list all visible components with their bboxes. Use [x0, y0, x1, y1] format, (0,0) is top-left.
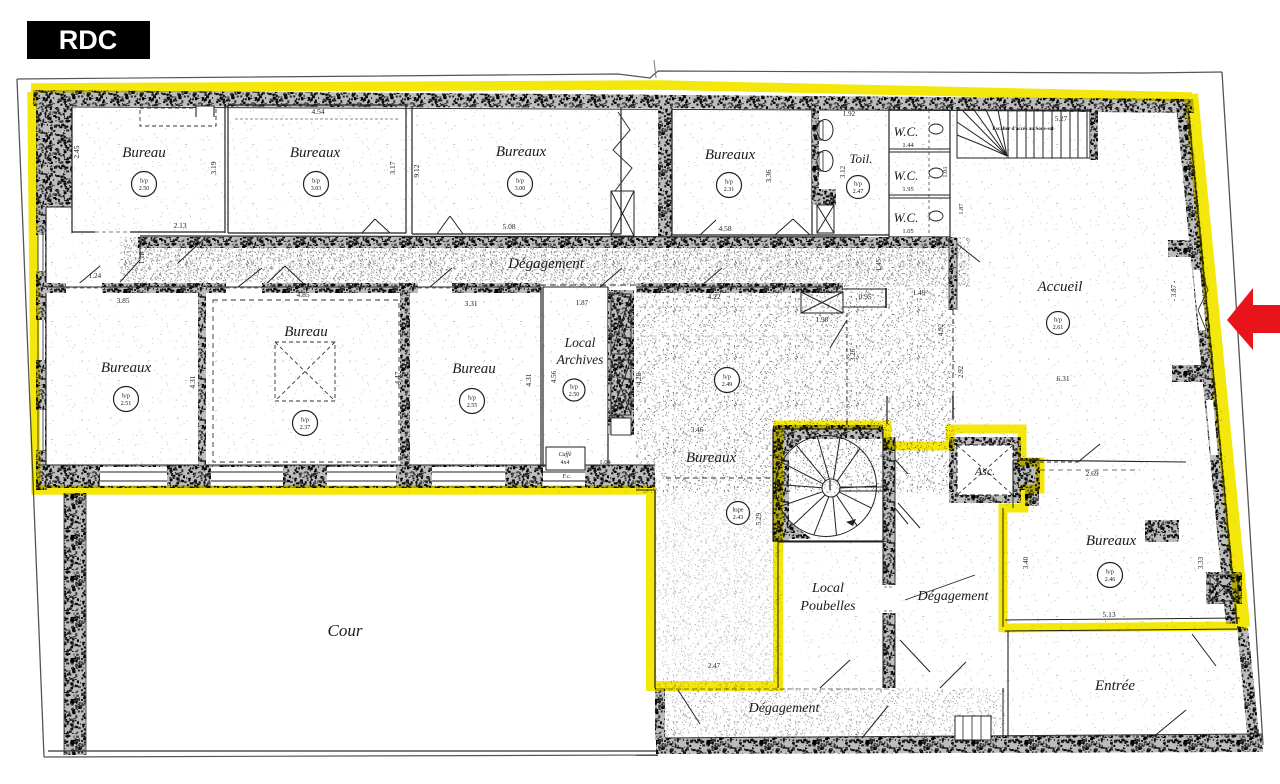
- svg-text:hspe: hspe: [733, 508, 744, 514]
- svg-text:h/p: h/p: [516, 179, 524, 185]
- svg-text:Poubelles: Poubelles: [799, 599, 856, 614]
- svg-text:h/p: h/p: [122, 394, 130, 400]
- svg-text:Local: Local: [564, 335, 596, 350]
- svg-text:3.19: 3.19: [209, 161, 218, 174]
- svg-text:5.08: 5.08: [502, 222, 515, 231]
- svg-text:Dégagement: Dégagement: [507, 256, 585, 272]
- svg-text:Bureaux: Bureaux: [101, 360, 152, 376]
- svg-text:3.26: 3.26: [849, 348, 857, 361]
- svg-text:Bureau: Bureau: [122, 145, 166, 161]
- svg-text:2.37: 2.37: [300, 425, 311, 431]
- svg-text:4.92: 4.92: [937, 323, 945, 336]
- svg-text:2.49: 2.49: [722, 382, 733, 388]
- svg-text:9.12: 9.12: [412, 164, 421, 177]
- svg-text:0.95: 0.95: [858, 292, 871, 301]
- svg-text:Bureaux: Bureaux: [686, 450, 737, 466]
- svg-text:3.85: 3.85: [116, 296, 129, 305]
- svg-text:h/p: h/p: [468, 396, 476, 402]
- svg-text:Accueil: Accueil: [1037, 279, 1083, 295]
- svg-text:h/p: h/p: [723, 375, 731, 381]
- svg-text:1.49: 1.49: [912, 288, 925, 297]
- svg-text:20.16: 20.16: [535, 241, 552, 250]
- svg-text:1.45: 1.45: [875, 258, 883, 271]
- svg-text:3.40: 3.40: [1022, 556, 1030, 569]
- svg-text:5.13: 5.13: [1102, 610, 1115, 619]
- svg-text:2.61: 2.61: [1053, 325, 1064, 331]
- svg-text:h/p: h/p: [570, 385, 578, 391]
- svg-text:Local: Local: [811, 581, 844, 596]
- svg-text:Escalier d'accès au Sous-sol: Escalier d'accès au Sous-sol: [992, 126, 1054, 132]
- svg-text:6.31: 6.31: [1056, 374, 1069, 383]
- svg-text:Bureau: Bureau: [452, 361, 496, 377]
- svg-text:h/p: h/p: [301, 418, 309, 424]
- svg-text:Bureaux: Bureaux: [496, 144, 547, 160]
- svg-text:h/p: h/p: [1054, 318, 1062, 324]
- svg-text:Dégagement: Dégagement: [748, 701, 821, 716]
- svg-text:4.28: 4.28: [635, 372, 643, 385]
- svg-text:2.47: 2.47: [853, 189, 864, 195]
- svg-text:4.54: 4.54: [311, 107, 324, 116]
- svg-text:W.C.: W.C.: [894, 124, 919, 139]
- svg-text:3.17: 3.17: [388, 161, 397, 174]
- svg-text:1.87: 1.87: [958, 203, 965, 215]
- svg-text:4.31: 4.31: [524, 373, 533, 386]
- svg-text:4.85: 4.85: [296, 290, 309, 299]
- svg-text:1.18: 1.18: [138, 251, 146, 264]
- svg-text:Caffè: Caffè: [559, 451, 572, 458]
- svg-text:h/p: h/p: [854, 182, 862, 188]
- svg-text:2.92: 2.92: [957, 365, 965, 378]
- svg-text:3.03: 3.03: [311, 186, 322, 192]
- svg-text:4.56: 4.56: [550, 370, 558, 383]
- svg-text:3.46: 3.46: [691, 426, 704, 434]
- svg-text:2.50: 2.50: [569, 392, 580, 398]
- svg-text:RDC: RDC: [59, 25, 118, 55]
- svg-text:5.29: 5.29: [755, 512, 763, 525]
- svg-text:1.01: 1.01: [942, 166, 949, 177]
- svg-text:2.13: 2.13: [173, 221, 186, 230]
- svg-text:Bureau: Bureau: [284, 324, 328, 340]
- svg-text:1.92: 1.92: [843, 110, 856, 118]
- svg-text:2.46: 2.46: [1105, 577, 1116, 583]
- svg-text:Dégagement: Dégagement: [917, 589, 990, 604]
- svg-text:Bureaux: Bureaux: [290, 145, 341, 161]
- svg-text:1.87: 1.87: [576, 299, 589, 307]
- svg-text:3.31: 3.31: [464, 299, 477, 308]
- svg-text:5.27: 5.27: [1055, 115, 1068, 123]
- svg-text:3.12: 3.12: [839, 165, 847, 178]
- svg-text:Cour: Cour: [328, 621, 363, 640]
- svg-text:3.36: 3.36: [764, 169, 773, 182]
- svg-text:2.47: 2.47: [708, 662, 721, 670]
- svg-text:h/p: h/p: [140, 179, 148, 185]
- svg-text:2.43: 2.43: [733, 515, 744, 521]
- svg-text:4x4: 4x4: [561, 460, 570, 466]
- svg-text:Bureaux: Bureaux: [705, 147, 756, 163]
- svg-text:Toil.: Toil.: [849, 151, 872, 166]
- svg-text:F.c.: F.c.: [563, 474, 572, 480]
- svg-text:h/p: h/p: [725, 180, 733, 186]
- svg-text:3.33: 3.33: [1197, 556, 1205, 569]
- svg-text:Archives: Archives: [556, 352, 604, 367]
- svg-text:1.05: 1.05: [902, 228, 913, 235]
- svg-text:Entrée: Entrée: [1094, 678, 1135, 694]
- svg-text:2.50: 2.50: [139, 186, 150, 192]
- svg-text:W.C.: W.C.: [894, 168, 919, 183]
- svg-text:h/p: h/p: [312, 179, 320, 185]
- svg-text:1.95: 1.95: [902, 186, 913, 193]
- svg-text:Asc.: Asc.: [974, 464, 995, 478]
- svg-text:4.31: 4.31: [188, 375, 197, 388]
- svg-text:- 3.87 -: - 3.87 -: [1170, 280, 1178, 301]
- svg-text:2.51: 2.51: [121, 401, 132, 407]
- svg-text:1.98: 1.98: [816, 316, 829, 324]
- svg-text:1.04: 1.04: [599, 459, 611, 466]
- svg-text:2.55: 2.55: [467, 403, 478, 409]
- svg-text:2.31: 2.31: [724, 187, 735, 193]
- svg-text:4.22: 4.22: [707, 292, 720, 301]
- svg-text:W.C.: W.C.: [894, 210, 919, 225]
- svg-text:h/p: h/p: [1106, 570, 1114, 576]
- svg-text:4.58: 4.58: [718, 224, 731, 233]
- svg-text:1.44: 1.44: [902, 142, 914, 149]
- svg-text:2.45: 2.45: [72, 145, 81, 158]
- svg-text:Bureaux: Bureaux: [1086, 533, 1137, 549]
- svg-text:3.00: 3.00: [515, 186, 526, 192]
